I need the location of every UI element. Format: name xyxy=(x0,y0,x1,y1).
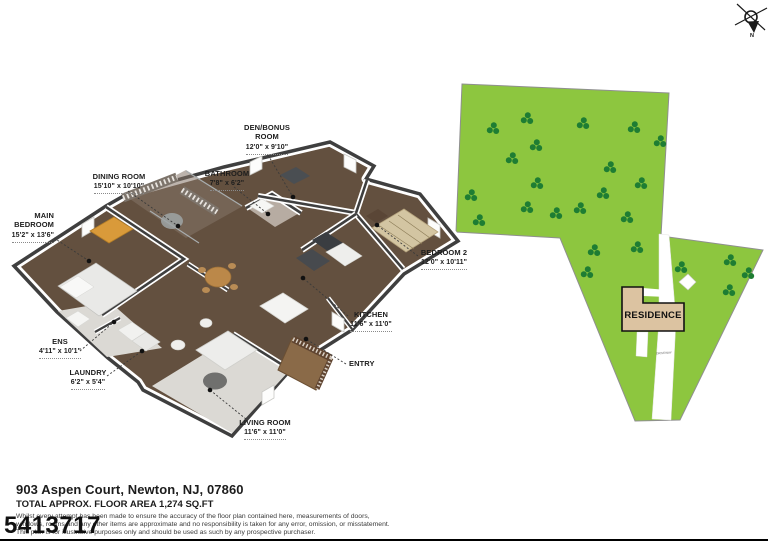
room-dims: 12'0" x 10'11" xyxy=(421,259,467,270)
chair xyxy=(202,287,210,293)
property-address: 903 Aspen Court, Newton, NJ, 07860 xyxy=(16,482,390,497)
room-dims: 15'10" x 10'10" xyxy=(94,183,144,194)
residence-label: RESIDENCE xyxy=(622,310,684,321)
room-dims: 11'6" x 11'0" xyxy=(244,429,286,440)
room-dims: 6'2" x 5'4" xyxy=(71,379,105,390)
room-dims: 11'6" x 11'0" xyxy=(350,321,392,332)
walkway-bottom xyxy=(636,332,648,357)
room-name: LIVING ROOM xyxy=(224,418,306,427)
room-dims: 7'8" x 6'2" xyxy=(210,180,244,191)
room-label-bathroom: BATHROOM 7'8" x 6'2" xyxy=(193,169,261,191)
room-name: BATHROOM xyxy=(193,169,261,178)
room-name: ENS xyxy=(28,337,92,346)
room-name: LAUNDRY xyxy=(52,368,124,377)
plan-graphics xyxy=(0,0,768,542)
floor-area: TOTAL APPROX. FLOOR AREA 1,274 SQ.FT xyxy=(16,499,390,510)
room-label-laundry: LAUNDRY 6'2" x 5'4" xyxy=(52,368,124,390)
bottom-border-line xyxy=(0,539,768,541)
room-name: KITCHEN xyxy=(332,310,410,319)
rug xyxy=(203,373,227,390)
hall-table xyxy=(205,267,231,287)
room-label-entry: ENTRY xyxy=(349,359,393,368)
room-label-bedroom-2: BEDROOM 2 12'0" x 10'11" xyxy=(400,248,488,270)
room-name: DEN/BONUS ROOM xyxy=(239,123,295,142)
armchair xyxy=(171,340,185,350)
room-label-dining-room: DINING ROOM 15'10" x 10'10" xyxy=(80,172,158,194)
room-name: ENTRY xyxy=(349,359,393,368)
lot-polygon xyxy=(456,84,763,421)
compass-icon xyxy=(735,4,767,33)
room-label-main-bedroom: MAIN BEDROOM 15'2" x 13'6" xyxy=(2,211,54,243)
room-label-kitchen: KITCHEN 11'6" x 11'0" xyxy=(332,310,410,332)
compass-north-label: N xyxy=(750,33,754,39)
room-dims: 12'0" x 9'10" xyxy=(246,144,288,155)
listing-id: 5413717 xyxy=(4,512,101,540)
room-name: MAIN BEDROOM xyxy=(2,211,54,230)
chair xyxy=(230,284,238,290)
room-name: DINING ROOM xyxy=(80,172,158,181)
room-label-den-bonus-room: DEN/BONUS ROOM 12'0" x 9'10" xyxy=(239,123,295,155)
room-dims: 15'2" x 13'6" xyxy=(12,232,54,243)
room-name: BEDROOM 2 xyxy=(400,248,488,257)
room-label-living-room: LIVING ROOM 11'6" x 11'0" xyxy=(224,418,306,440)
floor-plan-page: MAIN BEDROOM 15'2" x 13'6" DINING ROOM 1… xyxy=(0,0,768,542)
room-label-ens: ENS 4'11" x 10'1" xyxy=(28,337,92,359)
room-dims: 4'11" x 10'1" xyxy=(39,348,81,359)
site-plan xyxy=(456,84,763,421)
armchair xyxy=(200,319,212,328)
chair xyxy=(228,263,236,269)
chair xyxy=(198,267,206,273)
